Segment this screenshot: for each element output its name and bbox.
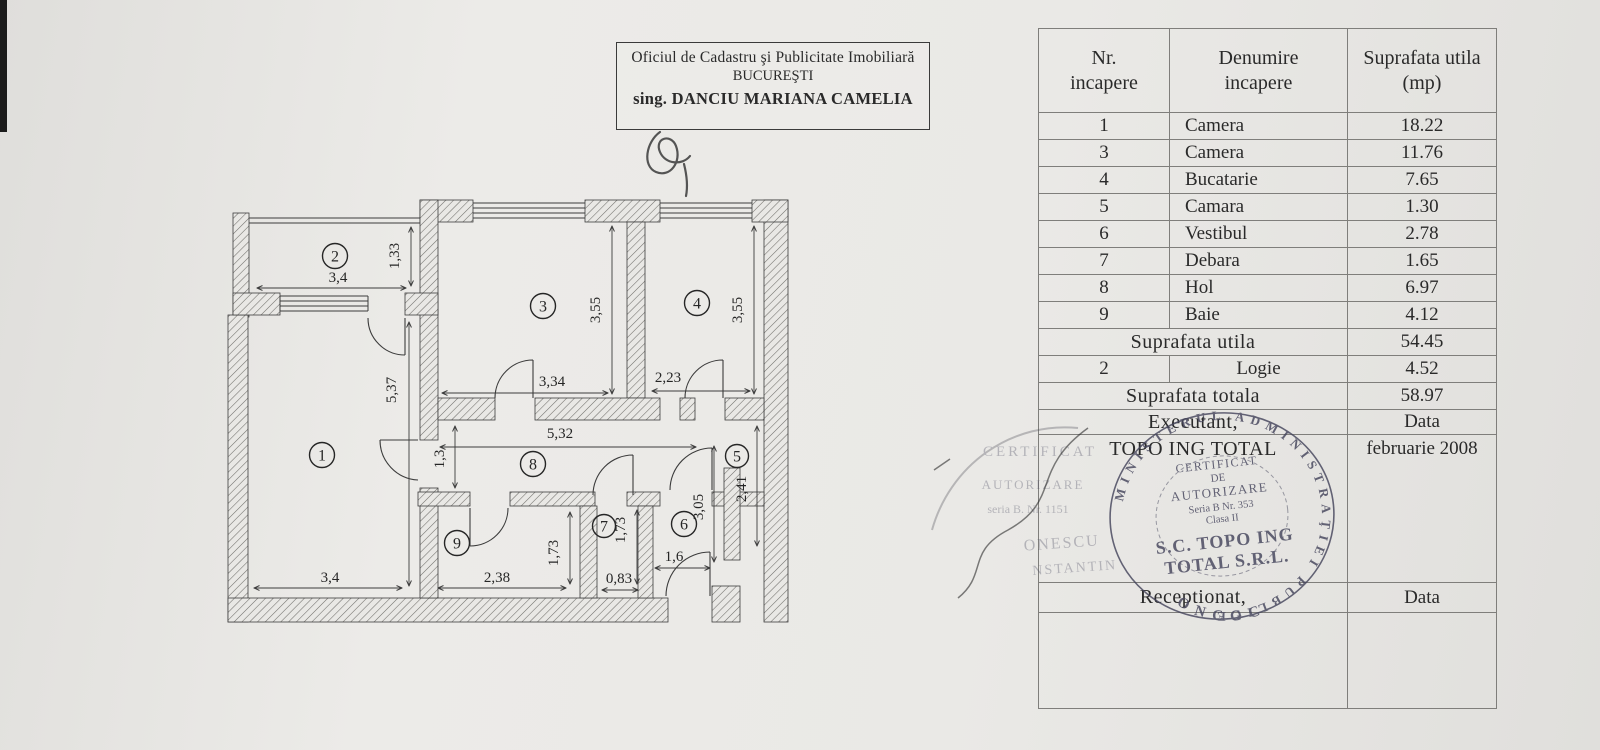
office-name: Oficiul de Cadastru şi Publicitate Imobi… [617,49,929,67]
cell-nr: 5 [1039,194,1170,221]
door-hall [593,455,633,495]
wall [510,492,595,506]
cell-name: Camera [1170,140,1348,167]
wall [420,200,438,440]
wall [680,398,695,420]
summary-utila-label: Suprafata utila [1039,329,1348,356]
cell-nr: 3 [1039,140,1170,167]
doors [368,318,723,596]
svg-text:8: 8 [529,457,537,474]
cell-name: Debara [1170,248,1348,275]
cell-area: 6.97 [1348,275,1497,302]
door-room3 [495,360,533,398]
cell-nr: 9 [1039,302,1170,329]
dim-room6-width: 1,6 [665,549,684,565]
cell-nr: 2 [1039,356,1170,383]
room-label-8: 8 [521,452,546,477]
wall [405,293,438,315]
wall [724,468,740,560]
room-label-1: 1 [310,443,335,468]
wall [712,492,764,506]
table-row: 1 Camera 18.22 [1039,113,1497,140]
dim-room6-height: 3,05 [691,494,707,520]
svg-text:9: 9 [453,536,461,553]
svg-text:4: 4 [693,296,701,313]
cell-area: 11.76 [1348,140,1497,167]
cell-name: Baie [1170,302,1348,329]
table-row: 9 Baie 4.12 [1039,302,1497,329]
photo-edge-shadow [0,0,7,132]
table-row: 6 Vestibul 2.78 [1039,221,1497,248]
table-row: 3 Camera 11.76 [1039,140,1497,167]
header-suprafata: Suprafata utila (mp) [1348,29,1497,113]
summary-utila-row: Suprafata utila 54.45 [1039,329,1497,356]
wall [752,200,788,222]
wall [638,506,653,598]
cell-area: 7.65 [1348,167,1497,194]
svg-text:2: 2 [331,249,339,266]
dim-room9-width: 2,38 [484,570,510,586]
receptionat-label: Receptionat, [1039,583,1348,613]
company-date: februarie 2008 [1348,435,1497,583]
cell-area: 2.78 [1348,221,1497,248]
wall [420,200,473,222]
floor-plan-walls [228,200,788,622]
wall [233,213,249,317]
logie-row: 2 Logie 4.52 [1039,356,1497,383]
wall [627,222,645,398]
dim-room4-width: 2,23 [655,370,681,386]
door-room9 [470,508,508,546]
room-label-3: 3 [531,294,556,319]
room-label-2: 2 [323,244,348,269]
wall [764,200,788,622]
windows [249,203,752,311]
dimension-labels: 3,4 1,33 5,37 3,4 5,32 1,3 3,34 3,55 2,2… [321,243,750,587]
receptionat-row: Receptionat, Data [1039,583,1497,613]
scanned-cadastral-document: { "header_box": { "line1": "Oficiul de C… [0,0,1600,750]
door-room1 [380,440,418,480]
wall [233,293,280,315]
surveyor-header-box: Oficiul de Cadastru şi Publicitate Imobi… [616,42,930,130]
cell-area: 4.52 [1348,356,1497,383]
wall [418,492,470,506]
cell-name: Logie [1170,356,1348,383]
wall [438,398,495,420]
room-label-6: 6 [672,512,697,537]
room-label-4: 4 [685,291,710,316]
door-entrance [666,552,710,596]
empty-row [1039,613,1497,709]
table-header-row: Nr. incapere Denumire incapere Suprafata… [1039,29,1497,113]
wall [535,398,660,420]
summary-totala-label: Suprafata totala [1039,383,1348,410]
door-corridor [670,448,712,490]
svg-text:6: 6 [680,517,688,534]
office-city: BUCUREŞTI [617,68,929,85]
dim-logie-width: 3,4 [329,270,348,286]
executant-data-label: Data [1348,410,1497,435]
wall [712,586,740,622]
header-nr-incapere: Nr. incapere [1039,29,1170,113]
company-name: TOPO ING TOTAL [1039,435,1348,583]
dim-room1-width: 3,4 [321,570,340,586]
surveyor-signature [647,132,690,196]
company-row: TOPO ING TOTAL februarie 2008 [1039,435,1497,583]
dim-room5-height: 2,41 [734,476,750,502]
window-room4 [660,203,752,218]
dim-room3-height: 3,55 [588,297,604,323]
cell-name: Hol [1170,275,1348,302]
cell-nr: 8 [1039,275,1170,302]
door-logie [368,318,405,355]
dim-hall-width: 5,32 [547,426,573,442]
cell-name: Camera [1170,113,1348,140]
room-number-labels: 1 2 3 4 5 6 7 8 [310,244,749,556]
dim-room1-height: 5,37 [384,376,400,403]
svg-text:5: 5 [733,449,741,466]
svg-text:1: 1 [318,448,326,465]
dim-hall-height: 1,3 [432,450,448,469]
room-label-7: 7 [593,515,616,538]
cell-area: 1.30 [1348,194,1497,221]
table-row: 8 Hol 6.97 [1039,275,1497,302]
table-row: 4 Bucatarie 7.65 [1039,167,1497,194]
cell-nr: 1 [1039,113,1170,140]
dim-room9-height: 1,73 [546,540,562,566]
dim-room4-height: 3,55 [730,297,746,323]
cell-area: 1.65 [1348,248,1497,275]
window-room3 [473,203,585,218]
wall [725,398,764,420]
cell-nr: 7 [1039,248,1170,275]
wall [228,598,668,622]
cell-name: Vestibul [1170,221,1348,248]
wall [420,488,438,598]
cell-area: 4.12 [1348,302,1497,329]
dimension-lines [254,226,757,590]
svg-text:7: 7 [600,519,608,536]
executant-row: Executant, Data [1039,410,1497,435]
dim-room7-width: 0,83 [606,571,632,587]
balcony-edge-line [249,218,420,223]
executant-label: Executant, [1039,410,1348,435]
cell-nr: 4 [1039,167,1170,194]
window-logie [280,296,368,311]
receptionat-data-label: Data [1348,583,1497,613]
cell-nr: 6 [1039,221,1170,248]
table-row: 7 Debara 1.65 [1039,248,1497,275]
dim-room7-height: 1,73 [613,517,629,543]
room-label-5: 5 [726,445,749,468]
surveyor-name: sing. DANCIU MARIANA CAMELIA [617,89,929,109]
wall [585,200,660,222]
cell-name: Bucatarie [1170,167,1348,194]
wall [228,315,248,622]
summary-utila-value: 54.45 [1348,329,1497,356]
door-room4 [685,360,723,398]
room-areas-table: Nr. incapere Denumire incapere Suprafata… [1038,28,1497,709]
summary-totala-row: Suprafata totala 58.97 [1039,383,1497,410]
cell-name: Camara [1170,194,1348,221]
wall [580,506,597,598]
dim-room3-width: 3,34 [539,374,566,390]
dim-logie-height: 1,33 [387,243,403,269]
wall [627,492,660,506]
header-denumire: Denumire incapere [1170,29,1348,113]
svg-text:3: 3 [539,299,547,316]
cell-area: 18.22 [1348,113,1497,140]
table-row: 5 Camara 1.30 [1039,194,1497,221]
summary-totala-value: 58.97 [1348,383,1497,410]
room-label-9: 9 [445,531,470,556]
